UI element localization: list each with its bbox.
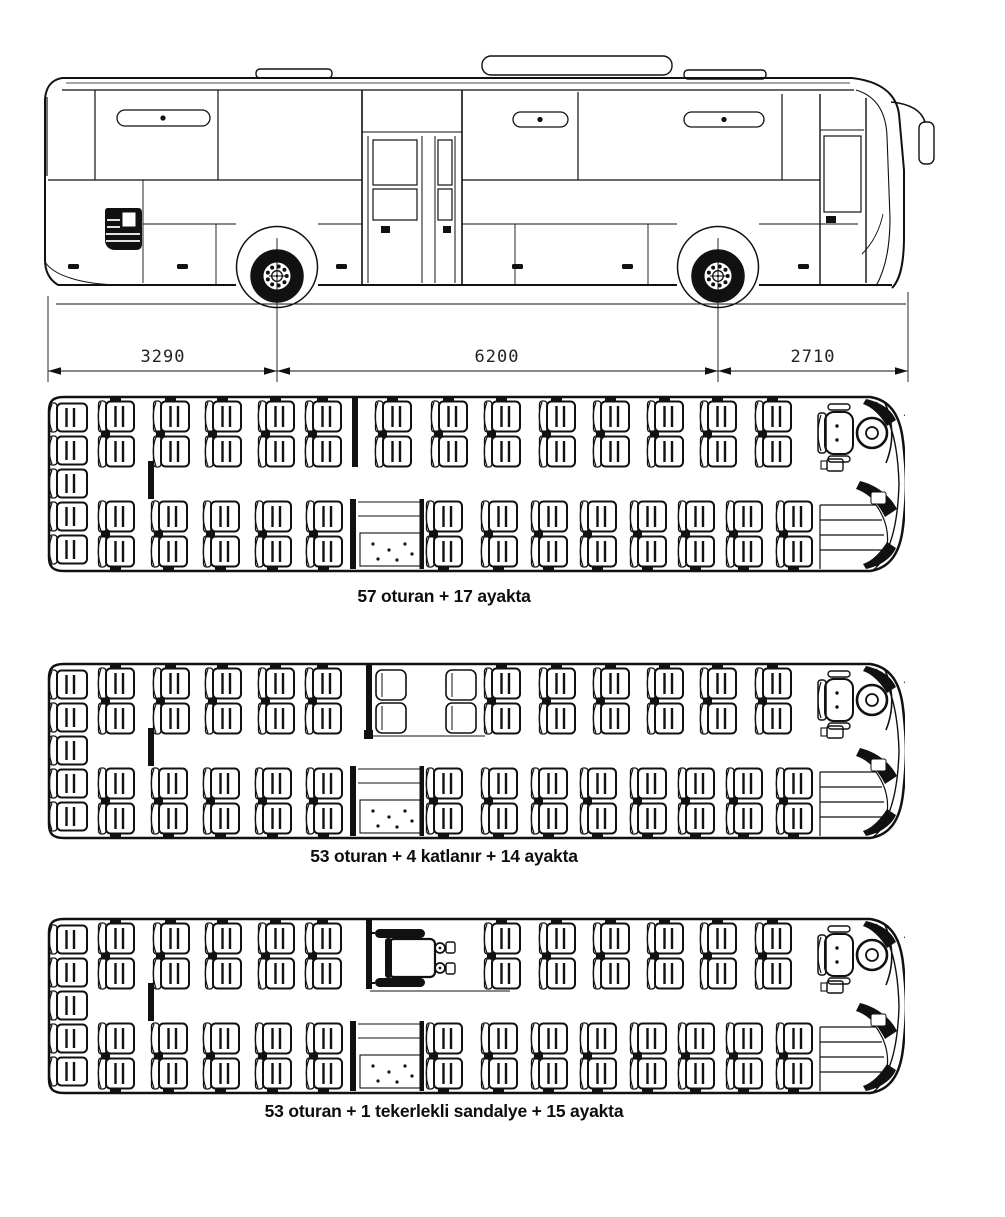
steering-wheel [857, 940, 887, 970]
bus-spec-sheet: 3290 6200 2710 57 oturan + 17 ayakta 53 … [0, 0, 1005, 1217]
door-handle [381, 226, 390, 233]
body-seams [143, 180, 858, 285]
dimension-label-wheelbase: 6200 [475, 347, 520, 367]
wiper [862, 214, 883, 254]
front-corner [863, 809, 896, 836]
window-band [47, 90, 854, 180]
front-corner [863, 1064, 896, 1091]
door-mat-dot [387, 548, 390, 551]
roof-ac-unit [482, 56, 672, 75]
dimension-label-front-overhang: 2710 [791, 347, 836, 367]
door-mat-dot [371, 809, 374, 812]
door-mat-dot [371, 542, 374, 545]
dimension-label-rear-overhang: 3290 [141, 347, 186, 367]
front-door [820, 94, 866, 285]
mirror [891, 102, 934, 164]
front-corner [863, 542, 896, 569]
sliding-vent-windows [117, 110, 764, 127]
door-mat-dot [387, 1070, 390, 1073]
bus-side-view: 3290 6200 2710 [0, 0, 1005, 392]
door-mat-dot [403, 542, 406, 545]
floor-plan-drawing [40, 660, 905, 842]
floor-plan-2-caption: 53 oturan + 4 katlanır + 14 ayakta [40, 846, 848, 867]
door-mat-dot [403, 809, 406, 812]
steering-wheel [857, 418, 887, 448]
door-mat-dot [410, 1074, 413, 1077]
floor-plan-3-caption: 53 oturan + 1 tekerlekli sandalye + 15 a… [40, 1101, 848, 1122]
door-mat-dot [376, 557, 379, 560]
floor-plan-drawing [40, 915, 905, 1097]
roof-hatch [256, 69, 332, 78]
door-mat-dot [410, 552, 413, 555]
steering-wheel [857, 685, 887, 715]
door-mat-dot [371, 1064, 374, 1067]
floor-plan-57-seats [40, 393, 905, 575]
door-mat-dot [376, 1079, 379, 1082]
door-mat-dot [395, 558, 398, 561]
door-mat-dot [410, 819, 413, 822]
door-mat-dot [376, 824, 379, 827]
floor-plan-1-caption: 57 oturan + 17 ayakta [40, 586, 848, 607]
dimension-lines: 3290 6200 2710 [48, 238, 908, 382]
door-mat-dot [403, 1064, 406, 1067]
door-handle [826, 216, 836, 223]
door-handle [443, 226, 451, 233]
door-mat-dot [387, 815, 390, 818]
floor-plan-drawing [40, 393, 905, 575]
floor-plan-53-plus-folding [40, 660, 905, 842]
middle-door [362, 90, 462, 285]
door-mat-dot [395, 1080, 398, 1083]
floor-plan-53-plus-wheelchair [40, 915, 905, 1097]
door-mat-dot [395, 825, 398, 828]
engine-louvre [105, 208, 142, 250]
wheels [237, 227, 759, 308]
roof-equipment [256, 56, 766, 79]
